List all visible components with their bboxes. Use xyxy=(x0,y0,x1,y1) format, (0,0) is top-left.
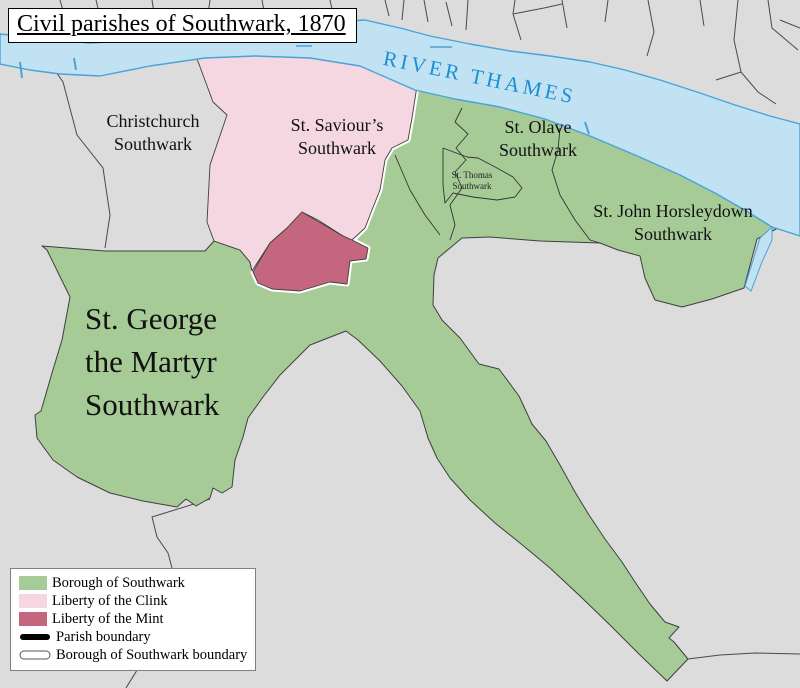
label-line: Southwark xyxy=(85,384,219,427)
label-line: St. Saviour’s xyxy=(291,114,384,137)
label-line: St. George xyxy=(85,298,219,341)
legend-row-borough-boundary: Borough of Southwark boundary xyxy=(19,646,249,664)
legend-row-borough: Borough of Southwark xyxy=(19,574,249,592)
parish-boundary-symbol xyxy=(19,631,51,643)
map-canvas: RIVER THAMES Christchurch Southwark St. … xyxy=(0,0,800,688)
label-line: St. John Horsleydown xyxy=(593,200,753,223)
borough-boundary-symbol xyxy=(19,649,51,661)
label-line: Southwark xyxy=(593,223,753,246)
legend-label: Parish boundary xyxy=(56,629,151,646)
legend-row-mint: Liberty of the Mint xyxy=(19,610,249,628)
legend-label: Liberty of the Clink xyxy=(52,593,168,610)
label-line: the Martyr xyxy=(85,341,219,384)
label-line: St. Olave xyxy=(499,116,577,139)
mint-color-swatch xyxy=(19,612,47,626)
legend-row-parish-boundary: Parish boundary xyxy=(19,628,249,646)
label-line: St. Thomas xyxy=(452,170,493,181)
legend-row-clink: Liberty of the Clink xyxy=(19,592,249,610)
label-st-olave-southwark: St. Olave Southwark xyxy=(499,116,577,163)
label-line: Christchurch xyxy=(107,110,200,133)
label-christchurch-southwark: Christchurch Southwark xyxy=(107,110,200,157)
map-title-box: Civil parishes of Southwark, 1870 xyxy=(8,8,357,43)
label-st-george-the-martyr: St. George the Martyr Southwark xyxy=(85,298,219,426)
label-line: Southwark xyxy=(499,139,577,162)
label-st-john-horsleydown: St. John Horsleydown Southwark xyxy=(593,200,753,247)
label-line: Southwark xyxy=(452,181,493,192)
label-line: Southwark xyxy=(291,137,384,160)
label-st-saviours-southwark: St. Saviour’s Southwark xyxy=(291,114,384,161)
label-line: Southwark xyxy=(107,133,200,156)
map-title: Civil parishes of Southwark, 1870 xyxy=(17,11,346,37)
borough-color-swatch xyxy=(19,576,47,590)
legend-label: Borough of Southwark boundary xyxy=(56,647,247,664)
legend-label: Borough of Southwark xyxy=(52,575,185,592)
label-st-thomas-southwark: St. Thomas Southwark xyxy=(452,170,493,193)
legend: Borough of Southwark Liberty of the Clin… xyxy=(10,568,256,671)
legend-label: Liberty of the Mint xyxy=(52,611,164,628)
clink-color-swatch xyxy=(19,594,47,608)
